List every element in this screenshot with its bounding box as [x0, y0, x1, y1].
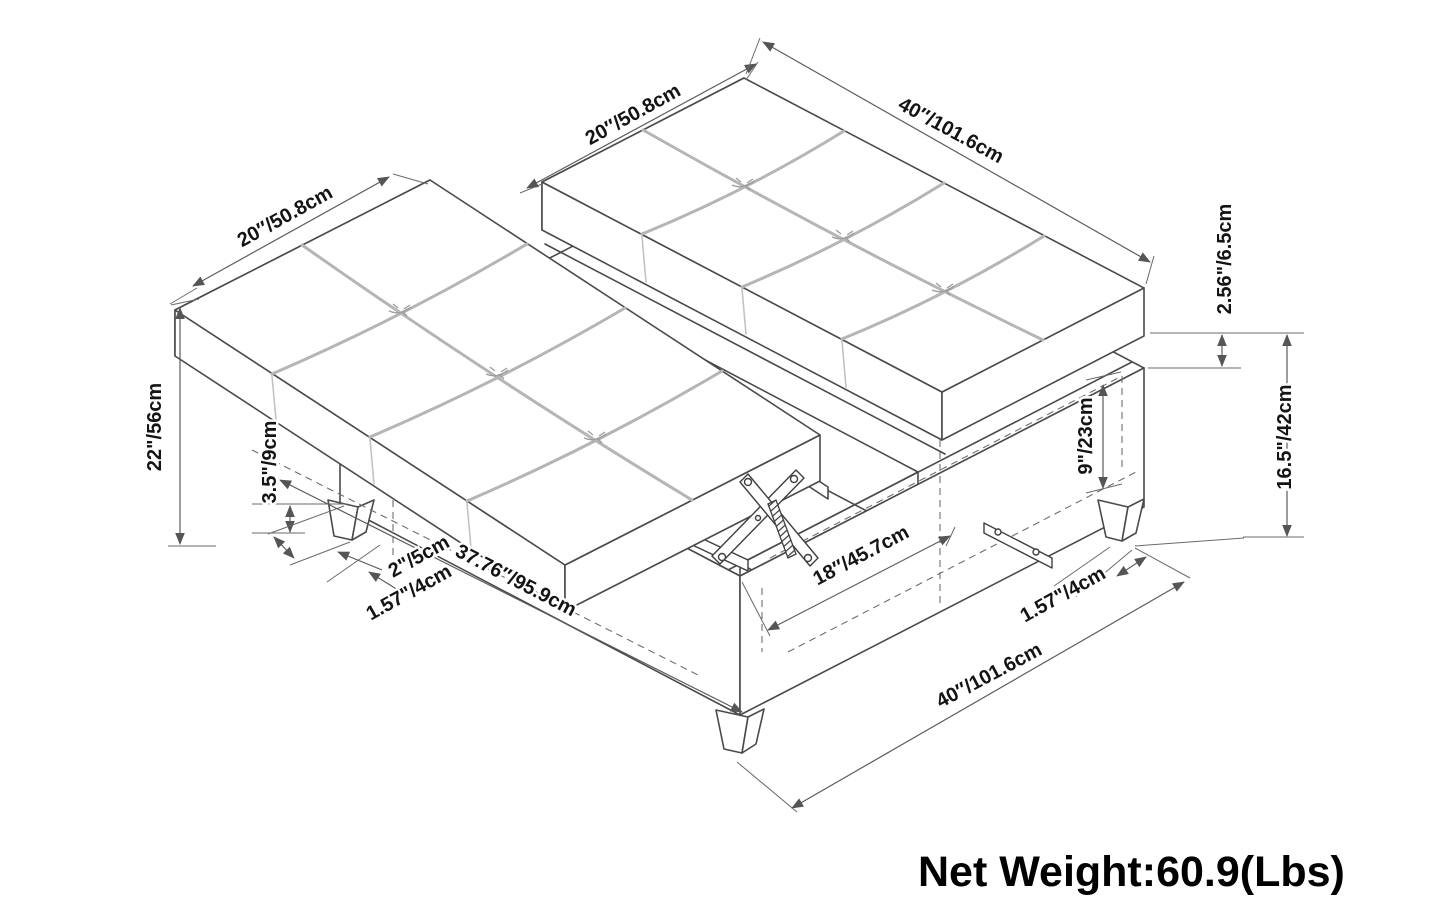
ottoman-dimension-drawing: 20″/50.8cm 20″/50.8cm 40″/101.6cm 2.56"/…	[0, 0, 1445, 905]
leg-front-center	[716, 709, 764, 753]
net-weight-label: Net Weight:60.9(Lbs)	[918, 848, 1345, 896]
dim-bottom-length-label: 40″/101.6cm	[933, 639, 1046, 713]
dim-leg-bottom-right-label: 1.57"/4cm	[1017, 562, 1110, 627]
dim-top-length-label: 40″/101.6cm	[894, 93, 1007, 168]
dimension-diagram-page: 20″/50.8cm 20″/50.8cm 40″/101.6cm 2.56"/…	[0, 0, 1445, 905]
leg-right	[1098, 499, 1144, 541]
dim-cushion-lip	[1148, 333, 1304, 368]
dim-storage-depth-label: 9"/23cm	[1075, 397, 1097, 474]
leg-front-left	[328, 500, 374, 540]
dim-leg-height-label: 3.5"/9cm	[259, 421, 281, 504]
dim-base-height-label: 16.5"/42cm	[1274, 384, 1296, 489]
dim-overall-height-label: 22"/56cm	[144, 383, 166, 471]
dim-cushion-lip-label: 2.56"/6.5cm	[1214, 204, 1236, 315]
